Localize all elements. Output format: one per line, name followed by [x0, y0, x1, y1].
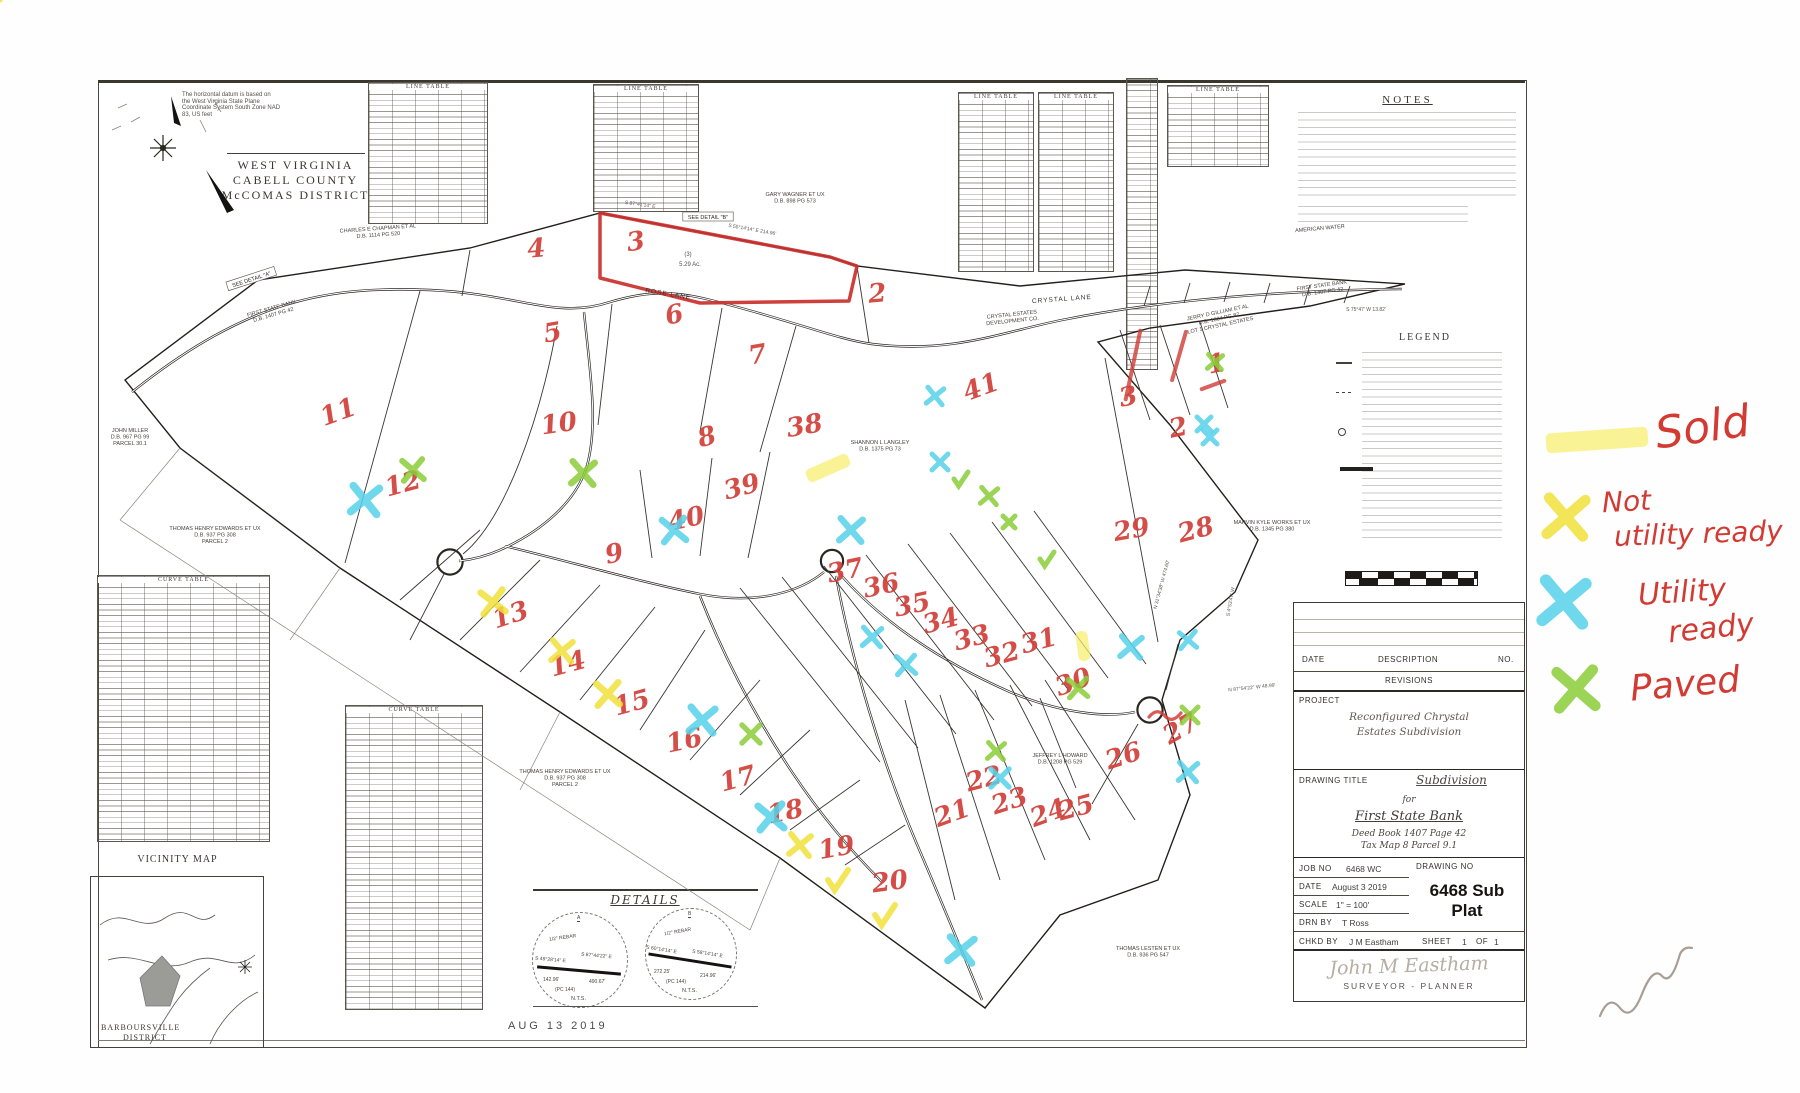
sheet-number: 1 — [1462, 937, 1467, 947]
utility-ready-x — [1542, 580, 1585, 623]
sold-highlight-mark — [1545, 426, 1648, 453]
drawing-number: 6468 Sub Plat — [1412, 881, 1522, 921]
legend-sold-label: Sold — [1652, 396, 1753, 460]
line-table: LINE TABLE — [593, 84, 699, 212]
project-name-line1: Reconfigured Chrystal — [1294, 711, 1524, 723]
vicinity-map-heading: VICINITY MAP — [120, 854, 235, 865]
revisions-date-col: DATE — [1302, 655, 1325, 664]
job-no-value: 6468 WC — [1346, 864, 1381, 874]
drawing-title-line2: for — [1294, 795, 1524, 805]
legend-symbol-line — [1336, 362, 1352, 364]
notes-paragraph — [1298, 206, 1468, 228]
paved-x — [1557, 670, 1595, 708]
deed-book-ref: Deed Book 1407 Page 42 — [1294, 829, 1524, 839]
project-name-line2: Estates Subdivision — [1294, 726, 1524, 738]
paved-x — [1557, 670, 1595, 708]
line-table-narrow — [1126, 78, 1158, 370]
curve-table: CURVE TABLE — [97, 575, 270, 842]
drawing-title-line3: First State Bank — [1294, 809, 1524, 824]
sheet-top-rule — [98, 80, 1525, 83]
project-label: PROJECT — [1299, 696, 1340, 705]
not-utility-ready-x — [1547, 498, 1585, 536]
job-no-label: JOB NO — [1299, 864, 1332, 873]
scale-label: SCALE — [1299, 900, 1328, 909]
legend-symbol-bar — [1340, 467, 1373, 471]
legend-entries — [1362, 352, 1502, 544]
scale-bar — [1345, 571, 1478, 586]
scale-value: 1" = 100' — [1336, 900, 1369, 910]
vicinity-map-box: BARBOURSVILLE DISTRICT — [90, 876, 264, 1048]
checked-by-value: J M Eastham — [1349, 937, 1399, 947]
drawing-title-label: DRAWING TITLE — [1299, 776, 1368, 785]
utility-ready-x — [1542, 580, 1585, 623]
paved-x — [1557, 670, 1595, 708]
checked-by-label: CHKD BY — [1299, 937, 1338, 946]
surveyor-role: SURVEYOR - PLANNER — [1294, 981, 1524, 991]
surveyor-signature: John M Eastham — [1294, 951, 1525, 981]
of-label: OF — [1476, 937, 1488, 946]
detail-circle-b: B 1/2" REBAR S 60°14'14" E 272.25' S 58°… — [645, 908, 737, 1000]
line-table: LINE TABLE — [368, 82, 488, 224]
detail-circle-a: A 1/2" REBAR S 49°28'14" E 142.96' S 87°… — [532, 912, 628, 1008]
utility-ready-x — [1542, 580, 1585, 623]
legend-not-utility-label-line2: utility ready — [1613, 514, 1783, 553]
detail-a-boundary-line — [537, 965, 621, 975]
drawn-by-label: DRN BY — [1299, 918, 1332, 927]
revisions-no-col: NO. — [1498, 655, 1514, 664]
drawing-title-line1: Subdivision — [1384, 773, 1519, 787]
legend-symbol-dashed — [1336, 392, 1352, 393]
detail-a-label: A — [577, 915, 580, 922]
legend-heading: LEGEND — [1345, 332, 1505, 343]
not-utility-ready-x — [1547, 498, 1585, 536]
sheet-label: SHEET — [1422, 937, 1451, 946]
notes-paragraph — [1298, 165, 1516, 199]
region-title: WEST VIRGINIA CABELL COUNTY McCOMAS DIST… — [218, 158, 373, 203]
revisions-desc-col: DESCRIPTION — [1378, 655, 1438, 664]
details-bottom-rule — [533, 1006, 758, 1007]
pencil-scribble — [1600, 948, 1692, 1016]
plat-scan: The horizontal datum is based on the Wes… — [0, 0, 1800, 1093]
legend-utility-ready-label-line2: ready — [1666, 607, 1755, 651]
sheet-bottom-rule — [98, 1040, 1525, 1041]
revisions-title: REVISIONS — [1294, 676, 1524, 685]
received-date-stamp: AUG 13 2019 — [508, 1020, 608, 1032]
details-top-rule — [533, 889, 758, 891]
legend-not-utility-label-line1: Not — [1601, 484, 1652, 520]
district-label-line2: DISTRICT — [123, 1033, 167, 1042]
notes-heading: NOTES — [1295, 94, 1520, 106]
date-label: DATE — [1299, 882, 1322, 891]
line-table: LINE TABLE — [1167, 85, 1269, 167]
datum-note: The horizontal datum is based on the Wes… — [182, 92, 312, 118]
line-table: LINE TABLE — [958, 92, 1034, 272]
district-label-line1: BARBOURSVILLE — [101, 1023, 180, 1032]
drawn-by-value: T Ross — [1342, 918, 1369, 928]
details-heading: DETAILS — [585, 893, 705, 907]
region-title-rule — [227, 153, 365, 154]
not-utility-ready-x — [1547, 498, 1585, 536]
detail-b-label: B — [688, 911, 691, 918]
date-value: August 3 2019 — [1332, 882, 1387, 892]
legend-paved-label: Paved — [1628, 659, 1741, 709]
legend-utility-ready-label-line1: Utility — [1637, 572, 1727, 613]
of-number: 1 — [1494, 937, 1499, 947]
legend-symbol-circle — [1338, 428, 1346, 436]
title-block: DATE DESCRIPTION NO. REVISIONS PROJECT R… — [1293, 602, 1525, 1002]
line-table: LINE TABLE — [1038, 92, 1114, 272]
curve-table: CURVE TABLE — [345, 705, 483, 1010]
tax-map-ref: Tax Map 8 Parcel 9.1 — [1294, 841, 1524, 851]
drawing-no-label: DRAWING NO — [1416, 862, 1474, 871]
notes-paragraph — [1298, 112, 1516, 158]
